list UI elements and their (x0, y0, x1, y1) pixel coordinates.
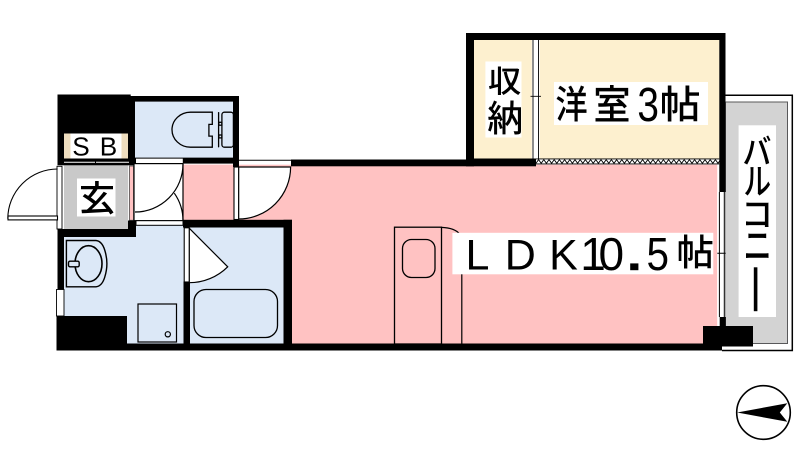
svg-text:3: 3 (637, 78, 659, 132)
svg-text:0: 0 (599, 228, 625, 280)
svg-text:L: L (466, 231, 490, 279)
svg-text:K: K (549, 231, 578, 279)
svg-text:B: B (100, 132, 117, 162)
svg-text:S: S (72, 132, 89, 162)
svg-text:5: 5 (646, 229, 669, 280)
svg-text:D: D (505, 231, 536, 279)
